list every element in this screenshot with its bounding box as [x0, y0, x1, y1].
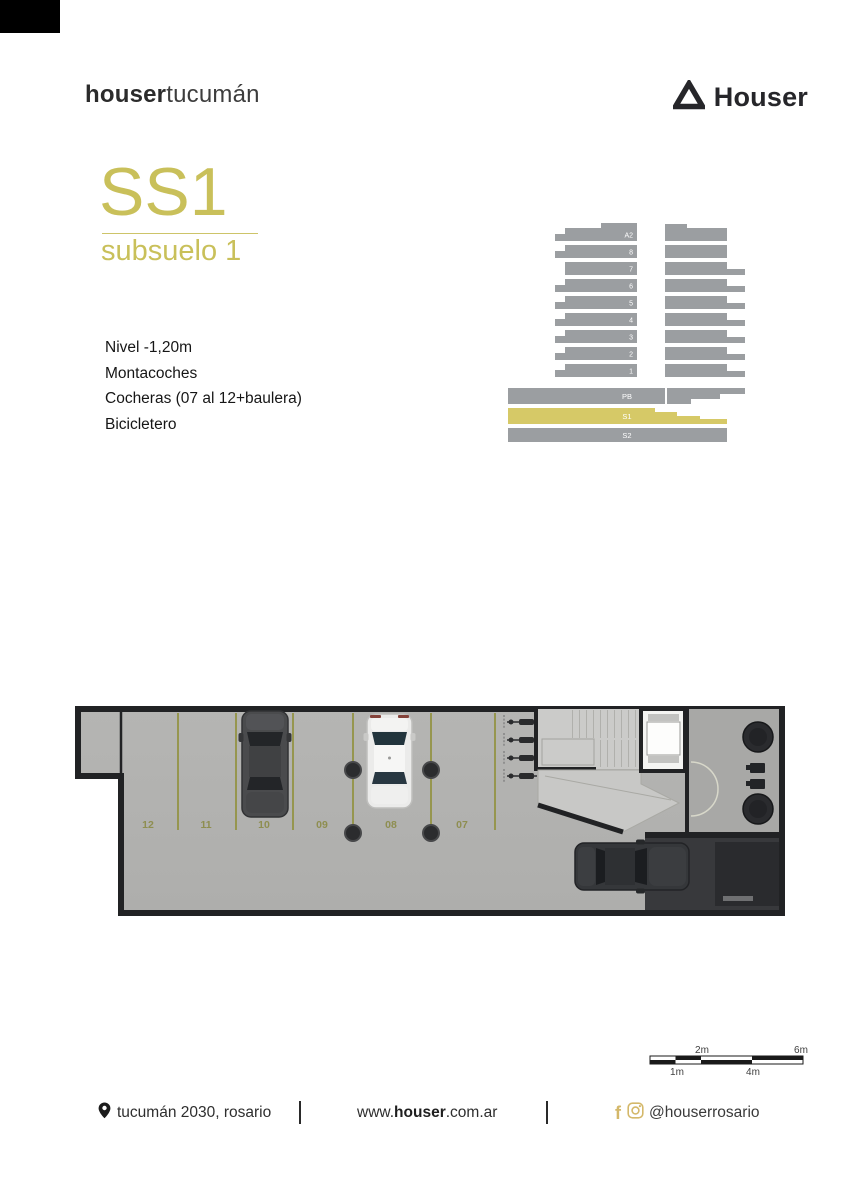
- title-underline: [102, 233, 258, 234]
- scale-bar: 2m 6m 1m 4m: [648, 1044, 810, 1083]
- stairs: [534, 709, 641, 771]
- houser-logo: Houser: [673, 80, 808, 115]
- building-section-diagram: A2 8 7 6 5 4 3 2 1 PB S1 S2: [505, 222, 750, 449]
- footer-website[interactable]: www.houser.com.ar: [357, 1100, 497, 1126]
- footer-social[interactable]: f @houserrosario: [615, 1100, 760, 1126]
- footer-divider: [299, 1101, 301, 1124]
- feature-item: Montacoches: [105, 361, 302, 387]
- section-floor-label: 5: [629, 301, 633, 308]
- section-floor-label: 2: [629, 352, 633, 359]
- feature-list: Nivel -1,20m Montacoches Cocheras (07 al…: [105, 335, 302, 437]
- section-floor-label: 6: [629, 284, 633, 291]
- section-level-label: PB: [622, 392, 632, 401]
- section-level-label: S2: [622, 431, 631, 440]
- feature-item: Bicicletero: [105, 412, 302, 438]
- feature-item: Nivel -1,20m: [105, 335, 302, 361]
- instagram-icon[interactable]: [627, 1102, 644, 1124]
- section-floor-label: 4: [629, 318, 633, 325]
- page-title: SS1: [99, 158, 228, 226]
- footer-address: tucumán 2030, rosario: [98, 1100, 271, 1126]
- scale-label: 1m: [670, 1067, 684, 1078]
- triangle-logo-icon: [673, 80, 705, 115]
- stall-number: 09: [316, 819, 328, 831]
- web-suffix: .com.ar: [446, 1104, 498, 1122]
- car-lift: [641, 709, 685, 771]
- scale-label: 6m: [794, 1045, 808, 1056]
- section-floor-label: 7: [629, 267, 633, 274]
- location-pin-icon: [98, 1102, 111, 1124]
- section-level-label: S1: [622, 412, 631, 421]
- corner-block: [0, 0, 60, 33]
- facebook-icon[interactable]: f: [615, 1104, 621, 1122]
- car-dark-horizontal: [575, 840, 689, 894]
- footer-divider: [546, 1101, 548, 1124]
- address-text: tucumán 2030, rosario: [117, 1104, 271, 1122]
- brand-light: tucumán: [166, 81, 259, 108]
- section-floor-label: A2: [624, 233, 633, 240]
- brand-bold: houser: [85, 81, 166, 108]
- stall-number: 08: [385, 819, 397, 831]
- scale-label: 2m: [695, 1045, 709, 1056]
- feature-item: Cocheras (07 al 12+baulera): [105, 386, 302, 412]
- section-highlight-s1: [508, 408, 727, 424]
- page-subtitle: subsuelo 1: [101, 235, 241, 268]
- brand: housertucumán: [85, 81, 260, 109]
- section-floor-label: 8: [629, 250, 633, 257]
- web-prefix: www.: [357, 1104, 394, 1122]
- car-white-vertical: [364, 714, 416, 808]
- machine-room: [685, 709, 779, 838]
- car-dark-vertical: [239, 711, 292, 817]
- section-floor-label: 1: [629, 369, 633, 376]
- floor-plan: 12 11 10 09 08 07: [75, 706, 785, 921]
- stall-number: 07: [456, 819, 468, 831]
- social-handle: @houserrosario: [649, 1104, 760, 1122]
- web-bold: houser: [394, 1104, 446, 1122]
- scale-label: 4m: [746, 1067, 760, 1078]
- stall-number: 12: [142, 819, 154, 831]
- stall-number: 11: [200, 819, 211, 831]
- stall-number: 10: [258, 819, 270, 831]
- section-floor-label: 3: [629, 335, 633, 342]
- logo-text: Houser: [714, 82, 808, 113]
